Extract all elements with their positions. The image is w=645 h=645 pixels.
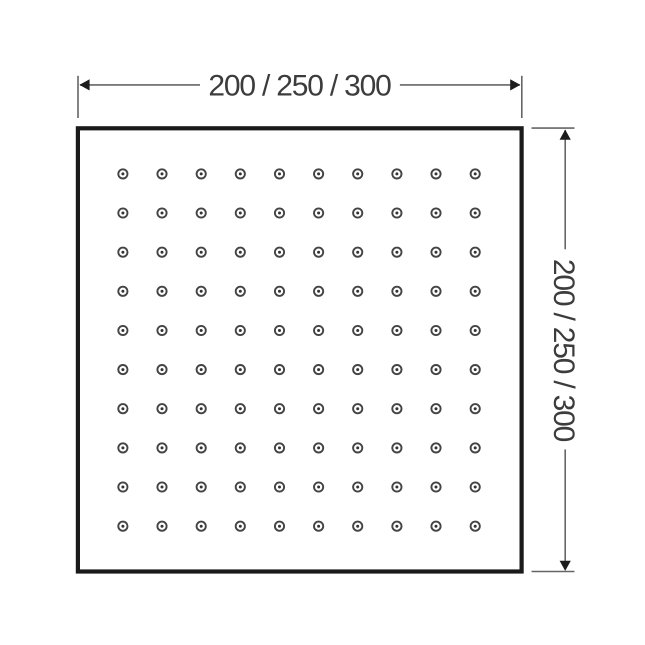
- svg-text:200 / 250 / 300: 200 / 250 / 300: [547, 259, 580, 442]
- svg-text:200 / 250 / 300: 200 / 250 / 300: [208, 70, 391, 103]
